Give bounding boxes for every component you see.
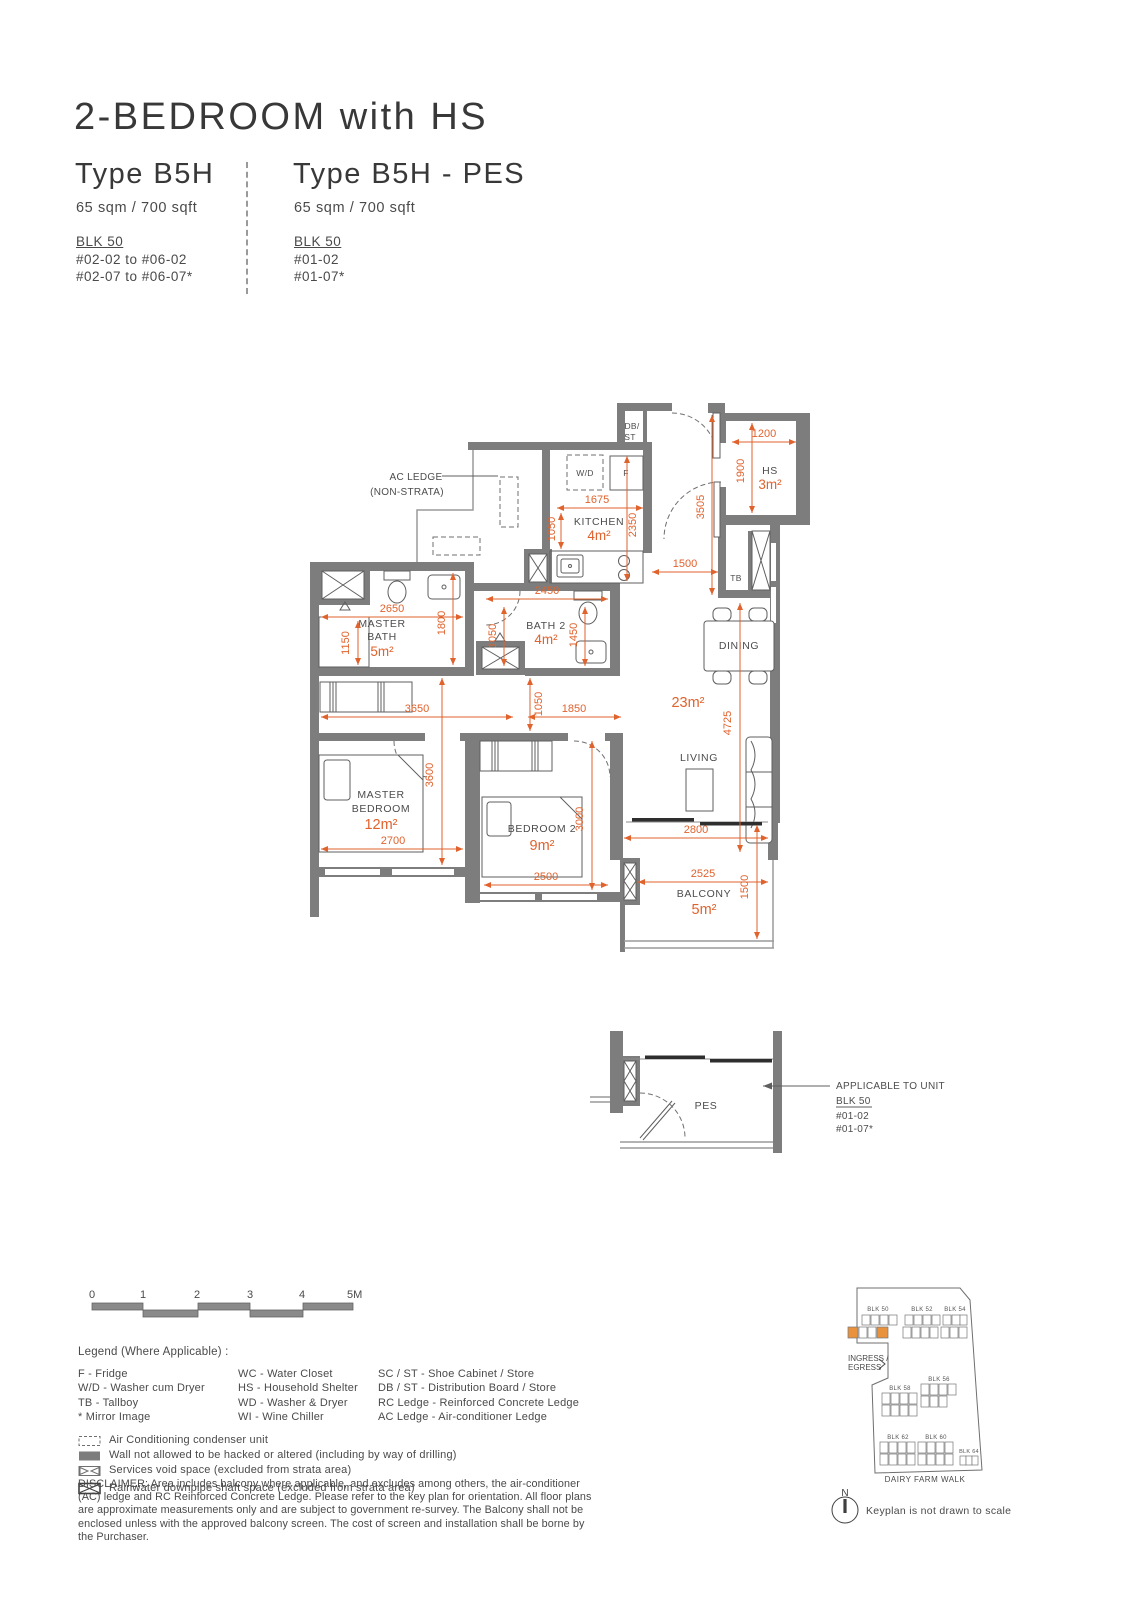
- dim-label: 1050: [546, 517, 558, 541]
- dim-label: 1500: [673, 558, 697, 570]
- washer-dryer-label: W/D: [576, 468, 593, 478]
- disclaimer: DISCLAIMER: Area includes balcony where …: [78, 1478, 594, 1544]
- ac-ledge-label-2: (NON-STRATA): [370, 487, 444, 498]
- legend-item: W/D - Washer cum Dryer: [78, 1381, 230, 1396]
- dim-label: 4725: [722, 711, 734, 735]
- hob-burner-1: [619, 556, 630, 567]
- legend-item: * Mirror Image: [78, 1410, 230, 1425]
- rainwater-shaft-masterbath: [316, 565, 370, 605]
- master-wardrobe: [320, 682, 412, 712]
- balcony-shaft: [620, 858, 640, 905]
- bedroom2-area: 9m²: [530, 838, 555, 854]
- pes-callout-2: BLK 50: [836, 1096, 871, 1107]
- balcony-label: BALCONY: [677, 888, 731, 900]
- sofa: [746, 737, 772, 843]
- legend-item: WC - Water Closet: [238, 1367, 370, 1382]
- master-bath-wc-tank: [384, 571, 410, 580]
- master-bath-wc: [388, 581, 406, 603]
- highlighted-unit-2: [877, 1327, 888, 1338]
- ingress-label-2: EGRESS: [848, 1363, 881, 1372]
- legend: Legend (Where Applicable) : F - Fridge W…: [78, 1345, 579, 1496]
- dining-label: DINING: [719, 640, 759, 652]
- kitchen-counter: [550, 551, 643, 583]
- pes-gate: [640, 1093, 685, 1140]
- rainwater-shaft-hall: [476, 641, 525, 675]
- floorplan-page: 2-BEDROOM with HS Type B5H 65 sqm / 700 …: [0, 0, 1130, 1600]
- legend-item: RC Ledge - Reinforced Concrete Ledge: [378, 1396, 579, 1411]
- keyplan-blk50-label: BLK 50: [867, 1307, 889, 1313]
- living-label: LIVING: [680, 752, 718, 764]
- pes-callout: APPLICABLE TO UNIT BLK 50 #01-02 #01-07*: [763, 1081, 945, 1135]
- main-floorplan: AC LEDGE (NON-STRATA): [280, 385, 810, 965]
- pes-walls: [590, 1031, 782, 1153]
- dim-label: 1675: [585, 494, 609, 506]
- dim-label: 1900: [735, 459, 747, 483]
- bath2-wc: [579, 602, 597, 624]
- hs-area: 3m²: [758, 477, 782, 492]
- keyplan-blk62-label: BLK 62: [887, 1435, 909, 1441]
- scale-tick-1: 1: [140, 1289, 146, 1301]
- dim-label: 3505: [695, 495, 707, 519]
- dim-label: 2800: [684, 824, 708, 836]
- master-bath-label-2: BATH: [367, 631, 397, 643]
- dim-label: 2500: [534, 871, 558, 883]
- bath2-label: BATH 2: [526, 620, 566, 632]
- pes-label: PES: [695, 1100, 718, 1112]
- variant-right-unit-2: #01-07*: [294, 269, 345, 284]
- scale-bar: 0 1 2 3 4 5M: [75, 1285, 395, 1327]
- legend-item: TB - Tallboy: [78, 1396, 230, 1411]
- dim-label: 1850: [562, 703, 586, 715]
- keyplan: BLK 50 BLK 52 BLK 54 BLK 58 BLK 56 BLK 6…: [800, 1258, 1130, 1558]
- balcony-area: 5m²: [692, 902, 717, 918]
- dim-label: 2525: [691, 868, 715, 880]
- bath2-door-arc: [486, 591, 520, 625]
- legend-item: AC Ledge - Air-conditioner Ledge: [378, 1410, 579, 1425]
- master-bedroom-label-2: BEDROOM: [352, 803, 410, 815]
- variant-left-block: BLK 50: [76, 234, 123, 249]
- north-label: N: [841, 1488, 848, 1499]
- dim-label: 2650: [380, 603, 404, 615]
- pes-floorplan: PES APPLICABLE TO UNIT BLK 50 #01-02 #01…: [560, 998, 960, 1163]
- keyplan-blk54-label: BLK 54: [944, 1307, 966, 1313]
- scale-tick-0: 0: [89, 1289, 95, 1301]
- variant-right-block: BLK 50: [294, 234, 341, 249]
- legend-item: SC / ST - Shoe Cabinet / Store: [378, 1367, 579, 1382]
- bath2-sink: [576, 641, 606, 663]
- keyplan-blk52-label: BLK 52: [911, 1307, 933, 1313]
- legend-symbol-label: Wall not allowed to be hacked or altered…: [109, 1448, 457, 1463]
- bath2-area: 4m²: [534, 632, 558, 647]
- dim-label: 1500: [739, 875, 751, 899]
- ac-condenser-dashed-2: [433, 537, 480, 555]
- master-bath-area: 5m²: [370, 644, 394, 659]
- tb-label: TB: [730, 573, 741, 583]
- variant-left-unit-1: #02-02 to #06-02: [76, 252, 187, 267]
- variant-left-area: 65 sqm / 700 sqft: [76, 200, 197, 216]
- kitchen-area: 4m²: [587, 528, 611, 543]
- bedroom2-wardrobe: [480, 741, 552, 771]
- dim-label: 1050: [487, 624, 499, 648]
- dim-label: 2700: [381, 835, 405, 847]
- keyplan-blk60-label: BLK 60: [925, 1435, 947, 1441]
- ac-condenser-symbol: [78, 1435, 102, 1447]
- legend-item: F - Fridge: [78, 1367, 230, 1382]
- dim-label: 1450: [568, 623, 580, 647]
- legend-item: DB / ST - Distribution Board / Store: [378, 1381, 579, 1396]
- keyplan-note: Keyplan is not drawn to scale: [866, 1505, 1011, 1517]
- scale-tick-5: 5M: [347, 1289, 362, 1301]
- ac-condenser-dashed-1: [500, 477, 518, 527]
- dim-label: 3000: [574, 807, 586, 831]
- pes-callout-1: APPLICABLE TO UNIT: [836, 1081, 945, 1092]
- hacked-wall-symbol: [78, 1450, 102, 1462]
- legend-item: WI - Wine Chiller: [238, 1410, 370, 1425]
- header-divider: [246, 162, 248, 294]
- highlighted-unit-1: [848, 1327, 858, 1338]
- dim-label: 2450: [535, 585, 559, 597]
- legend-item: HS - Household Shelter: [238, 1381, 370, 1396]
- hs-label: HS: [762, 465, 778, 477]
- pes-shaft: [620, 1056, 640, 1106]
- dbst-label-2: ST: [624, 432, 635, 442]
- master-bath-sink: [428, 575, 460, 599]
- legend-abbreviations: F - Fridge WC - Water Closet SC / ST - S…: [78, 1367, 579, 1425]
- kitchen-label: KITCHEN: [574, 516, 624, 528]
- hob-burner-2: [619, 570, 630, 581]
- pes-slider: [623, 1056, 773, 1063]
- ac-ledge-outline: [417, 450, 518, 562]
- scale-tick-3: 3: [247, 1289, 253, 1301]
- legend-title: Legend (Where Applicable) :: [78, 1345, 579, 1360]
- scale-tick-2: 2: [194, 1289, 200, 1301]
- keyplan-blk64-label: BLK 64: [959, 1449, 979, 1455]
- dim-label: 3650: [405, 703, 429, 715]
- dim-label: 3600: [424, 763, 436, 787]
- fridge-label: F: [623, 468, 629, 478]
- ac-ledge-label: AC LEDGE: [390, 472, 443, 483]
- services-void-symbol: [78, 1465, 102, 1477]
- legend-item: WD - Washer & Dryer: [238, 1396, 370, 1411]
- master-bedroom-area: 12m²: [364, 817, 397, 833]
- keyplan-blk56-label: BLK 56: [928, 1377, 950, 1383]
- dim-label: 1050: [533, 692, 545, 716]
- variant-right-name: Type B5H - PES: [293, 158, 525, 191]
- rainwater-shaft-kitchen: [524, 549, 552, 587]
- variant-left-unit-2: #02-07 to #06-07*: [76, 269, 193, 284]
- road-label: DAIRY FARM WALK: [885, 1475, 966, 1484]
- variant-left-name: Type B5H: [75, 158, 214, 191]
- dim-label: 1800: [436, 611, 448, 635]
- scale-tick-4: 4: [299, 1289, 305, 1301]
- variant-right-unit-1: #01-02: [294, 252, 339, 267]
- pes-callout-4: #01-07*: [836, 1124, 873, 1135]
- coffee-table: [686, 769, 713, 811]
- services-void-shaft: [752, 531, 770, 590]
- dim-label: 1200: [752, 428, 776, 440]
- dbst-label: DB/: [624, 421, 639, 431]
- bedroom2-label: BEDROOM 2: [508, 823, 576, 835]
- callout-arrowhead: [763, 1083, 772, 1090]
- dim-label: 2350: [627, 513, 639, 537]
- keyplan-blocks: [848, 1315, 978, 1465]
- keyplan-blk58-label: BLK 58: [889, 1386, 911, 1392]
- legend-symbol-label: Air Conditioning condenser unit: [109, 1433, 268, 1448]
- pes-callout-3: #01-02: [836, 1111, 869, 1122]
- page-title: 2-BEDROOM with HS: [74, 96, 488, 139]
- scale-bar-segments: [92, 1303, 353, 1317]
- living-dining-area: 23m²: [671, 695, 704, 711]
- bedroom2-bed: [482, 797, 582, 877]
- master-bedroom-label: MASTER: [357, 789, 404, 801]
- legend-symbol-label: Services void space (excluded from strat…: [109, 1463, 351, 1478]
- north-compass-icon: N: [832, 1488, 858, 1523]
- variant-right-area: 65 sqm / 700 sqft: [294, 200, 415, 216]
- dim-label: 1150: [340, 631, 352, 655]
- ingress-label-1: INGRESS /: [848, 1354, 889, 1363]
- master-bath-label: MASTER: [358, 618, 405, 630]
